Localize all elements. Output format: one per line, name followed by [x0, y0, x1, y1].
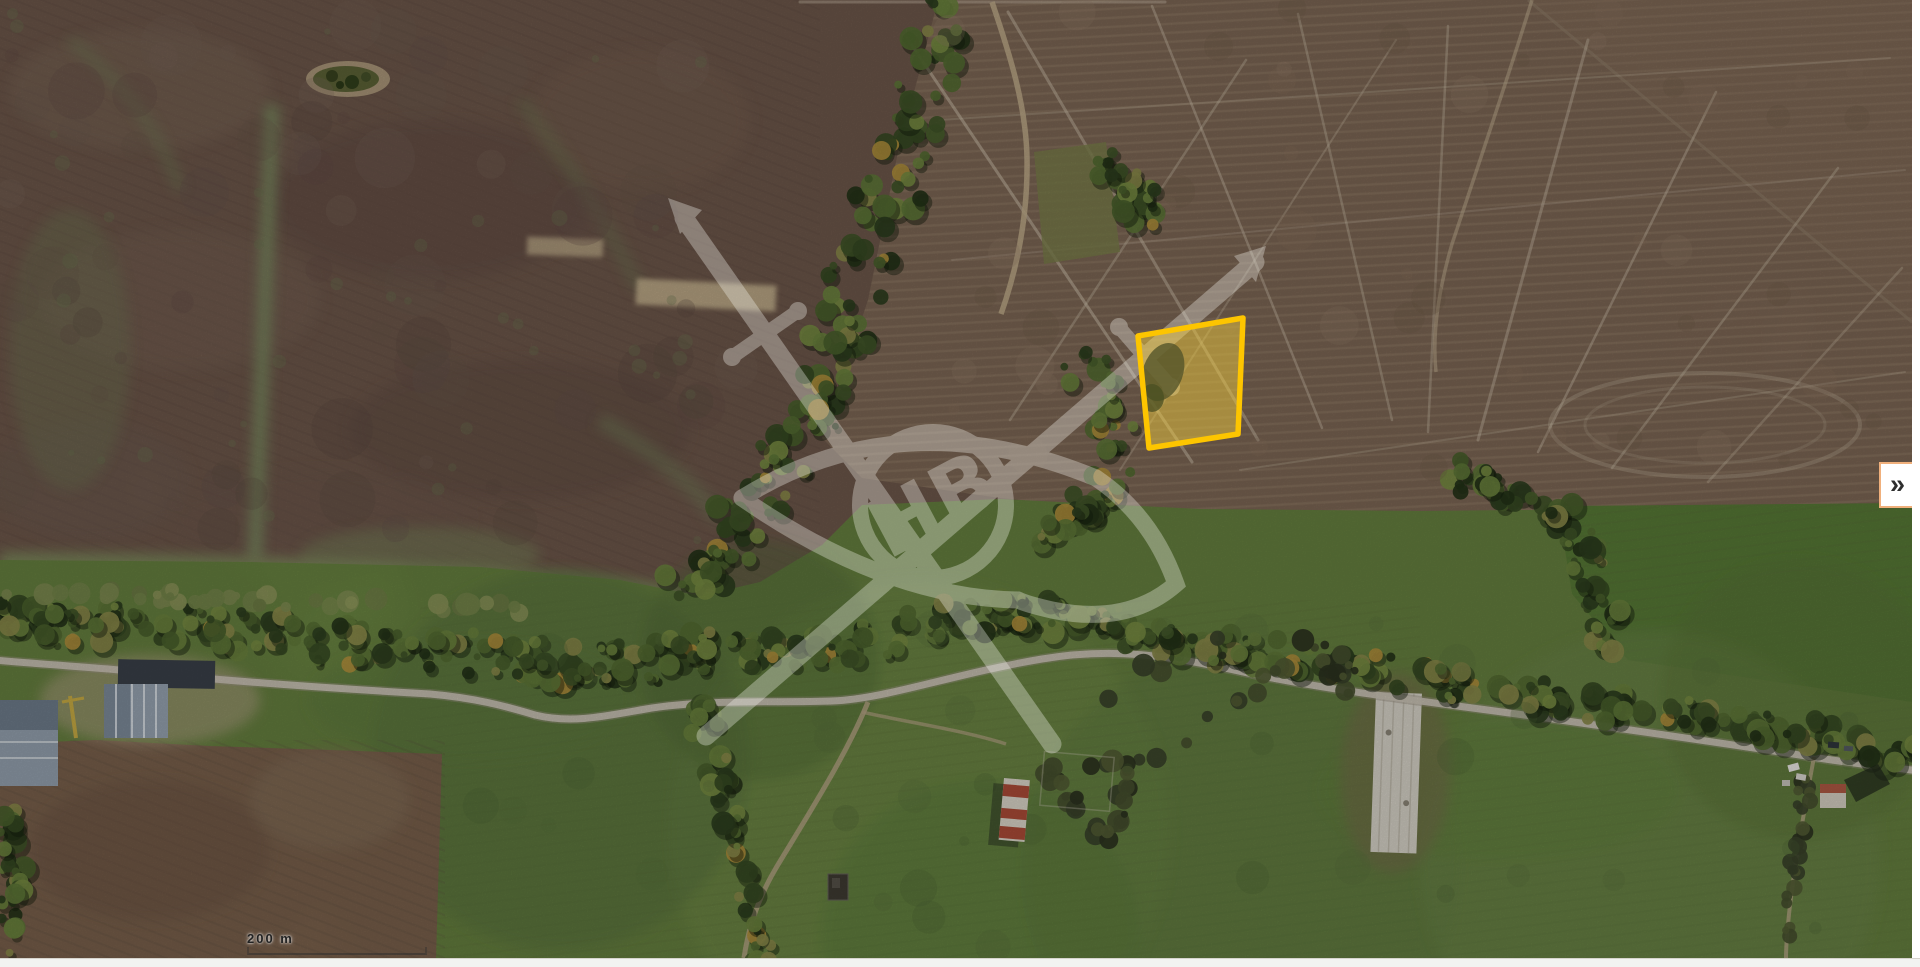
page-right-strip [1912, 0, 1920, 967]
map-scale-label: 200 m [247, 931, 294, 946]
property-boundary-polygon[interactable] [1134, 318, 1243, 448]
page: НВ 200 m » [0, 0, 1920, 967]
satellite-imagery: НВ [0, 0, 1912, 958]
double-chevron-right-icon: » [1890, 469, 1905, 500]
map-scale-bar [247, 947, 427, 955]
page-bottom-strip [0, 958, 1920, 967]
satellite-map[interactable]: НВ 200 m [0, 0, 1912, 958]
